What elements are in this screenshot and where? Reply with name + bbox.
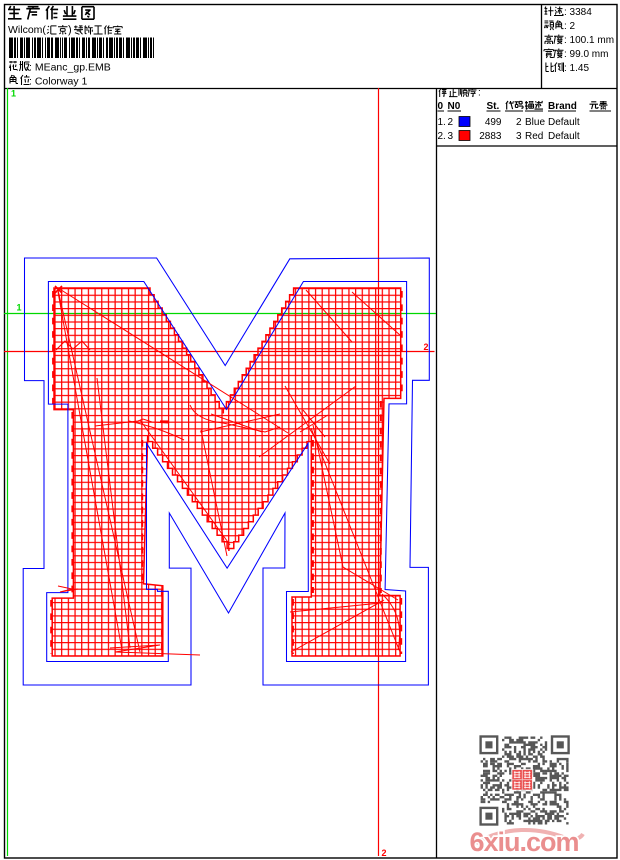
svg-text:Blue: Blue xyxy=(525,117,545,128)
svg-text:6xiu.com: 6xiu.com xyxy=(469,827,578,857)
svg-text:Brand: Brand xyxy=(548,101,577,112)
svg-text:1.: 1. xyxy=(438,117,446,128)
svg-text:: 100.1 mm: : 100.1 mm xyxy=(564,35,614,46)
svg-text:N0: N0 xyxy=(448,101,461,112)
svg-text:499: 499 xyxy=(485,117,502,128)
svg-text:Red: Red xyxy=(525,131,543,142)
svg-text:Wilcom(: Wilcom( xyxy=(8,24,46,36)
svg-text:2.: 2. xyxy=(438,131,446,142)
svg-text:2: 2 xyxy=(382,848,387,858)
svg-text:: 3384: : 3384 xyxy=(564,7,592,18)
svg-text::: : xyxy=(478,88,481,99)
svg-text:Default: Default xyxy=(548,117,580,128)
svg-text:: 1.45: : 1.45 xyxy=(564,63,589,74)
svg-text:2883: 2883 xyxy=(479,131,502,142)
svg-text:3: 3 xyxy=(448,131,454,142)
svg-text:: Colorway 1: : Colorway 1 xyxy=(29,76,88,88)
svg-text:2: 2 xyxy=(516,117,522,128)
svg-text:Default: Default xyxy=(548,131,580,142)
svg-text:: MEanc_gp.EMB: : MEanc_gp.EMB xyxy=(29,62,111,74)
svg-text:1: 1 xyxy=(17,303,22,313)
svg-text:0: 0 xyxy=(438,101,444,112)
svg-text:): ) xyxy=(68,24,72,36)
svg-text:2: 2 xyxy=(424,342,429,352)
svg-text:3: 3 xyxy=(516,131,522,142)
svg-text:: 2: : 2 xyxy=(564,21,576,32)
svg-text:2: 2 xyxy=(448,117,454,128)
svg-text:1: 1 xyxy=(11,89,16,99)
svg-text:: 99.0 mm: : 99.0 mm xyxy=(564,49,608,60)
svg-text:St.: St. xyxy=(487,101,500,112)
